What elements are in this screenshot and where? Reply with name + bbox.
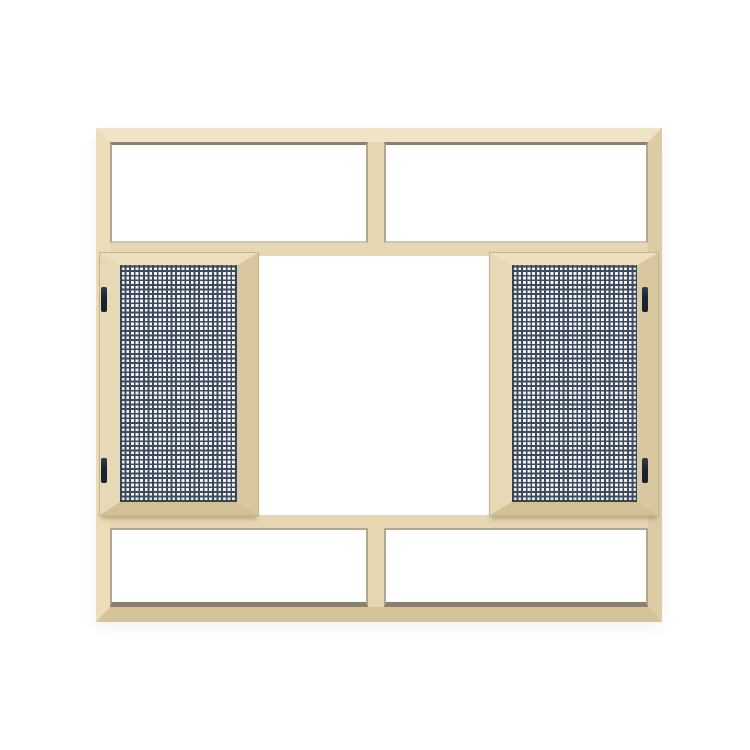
left-panel-top-hinge: [101, 287, 107, 312]
left-panel-bottom-hinge: [101, 458, 107, 483]
right-screen-mesh: [512, 265, 637, 502]
right-panel-bottom-hinge: [642, 458, 648, 483]
left-screen-mesh: [120, 265, 237, 502]
center-open-pane: [258, 256, 490, 515]
left-screen-panel: [100, 253, 258, 515]
right-screen-panel: [490, 253, 658, 515]
photo-caption: Product photograph of a cream-beige alum…: [0, 0, 1, 1]
top-left-glass-pane: [110, 142, 368, 243]
bottom-left-glass-pane: [110, 528, 368, 607]
top-right-glass-pane: [384, 142, 648, 243]
product-photo: Product photograph of a cream-beige alum…: [0, 0, 750, 750]
bottom-right-glass-pane: [384, 528, 648, 607]
right-panel-top-hinge: [642, 287, 648, 312]
